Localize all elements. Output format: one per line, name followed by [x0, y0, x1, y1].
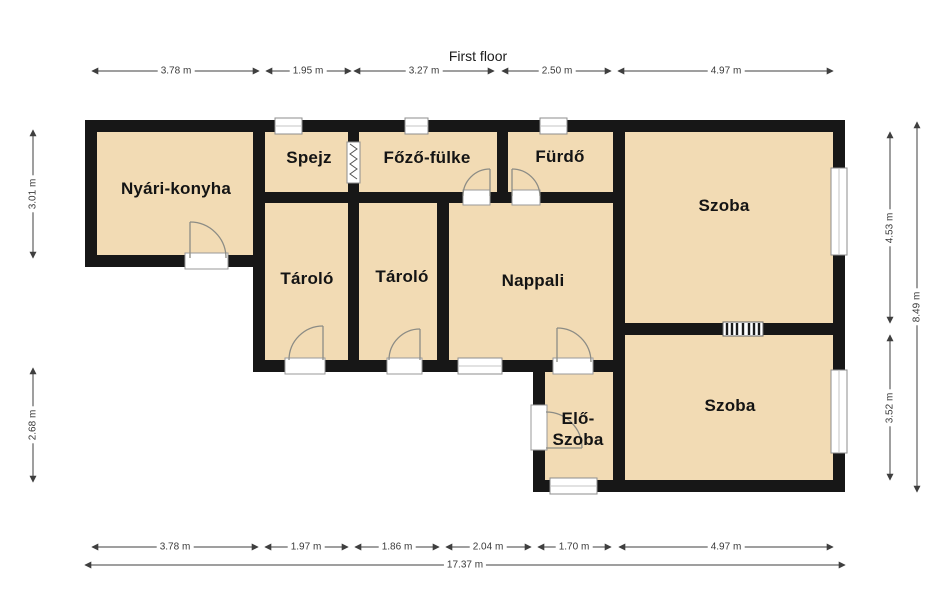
dim-label-bottom-5: 1.70 m	[556, 542, 593, 553]
wall-nappali-szoba	[613, 120, 625, 492]
dim-label-bottom-6: 4.97 m	[708, 542, 745, 553]
wall-left	[85, 120, 97, 267]
stove-element-szoba-divider	[723, 322, 763, 336]
dim-label-top-3: 3.27 m	[406, 66, 443, 77]
dim-label-left-1: 3.01 m	[28, 176, 39, 213]
room-label-furdo: Fürdő	[535, 147, 584, 167]
dim-label-right-1: 4.53 m	[885, 210, 896, 247]
dim-label-right-2: 3.52 m	[885, 390, 896, 427]
door-threshold-furdo	[512, 190, 540, 205]
floorplan-svg	[0, 0, 929, 600]
dim-label-top-4: 2.50 m	[539, 66, 576, 77]
room-label-tarolo-1: Tároló	[280, 269, 333, 289]
folding-door-spejz-fozo	[347, 142, 360, 183]
dim-label-top-2: 1.95 m	[290, 66, 327, 77]
dim-label-right-total: 8.49 m	[912, 289, 923, 326]
room-label-elo-szoba-line1: Elő-	[552, 408, 603, 429]
page-title: First floor	[449, 48, 507, 64]
room-label-elo-szoba: Elő- Szoba	[552, 408, 603, 450]
dim-label-top-1: 3.78 m	[158, 66, 195, 77]
floor-fill-layer	[85, 120, 845, 492]
door-threshold-tarolo-2	[387, 358, 422, 374]
wall-nyari-konyha-bottom	[85, 255, 265, 267]
wall-middle-horizontal	[253, 192, 625, 203]
wall-tarolo-nappali	[437, 192, 449, 372]
door-threshold-elo-left	[531, 405, 547, 450]
wall-nyari-spejz	[253, 120, 265, 372]
wall-top	[85, 120, 845, 132]
door-threshold-nappali-elo	[553, 358, 593, 374]
room-label-nyari-konyha: Nyári-konyha	[121, 179, 231, 199]
dim-label-bottom-3: 1.86 m	[379, 542, 416, 553]
door-threshold-fozo	[463, 190, 490, 205]
dim-label-bottom-4: 2.04 m	[470, 542, 507, 553]
room-label-elo-szoba-line2: Szoba	[552, 429, 603, 450]
room-label-nappali: Nappali	[502, 271, 565, 291]
room-label-fozo-fulke: Főző-fülke	[384, 148, 471, 168]
dim-label-top-5: 4.97 m	[708, 66, 745, 77]
room-area-right-block	[613, 120, 845, 492]
dim-label-bottom-1: 3.78 m	[157, 542, 194, 553]
dim-label-bottom-2: 1.97 m	[288, 542, 325, 553]
dim-label-bottom-total: 17.37 m	[444, 560, 486, 571]
wall-fozo-furdo	[497, 120, 508, 203]
room-label-szoba-bottom: Szoba	[704, 396, 755, 416]
room-label-spejz: Spejz	[286, 148, 331, 168]
room-label-tarolo-2: Tároló	[375, 267, 428, 287]
room-label-szoba-top: Szoba	[698, 196, 749, 216]
floor-plan-canvas: First floor Nyári-konyha Spejz Főző-fülk…	[0, 0, 929, 600]
door-threshold-nyari-konyha	[185, 253, 228, 269]
door-threshold-tarolo-1	[285, 358, 325, 374]
dim-label-left-2: 2.68 m	[28, 407, 39, 444]
